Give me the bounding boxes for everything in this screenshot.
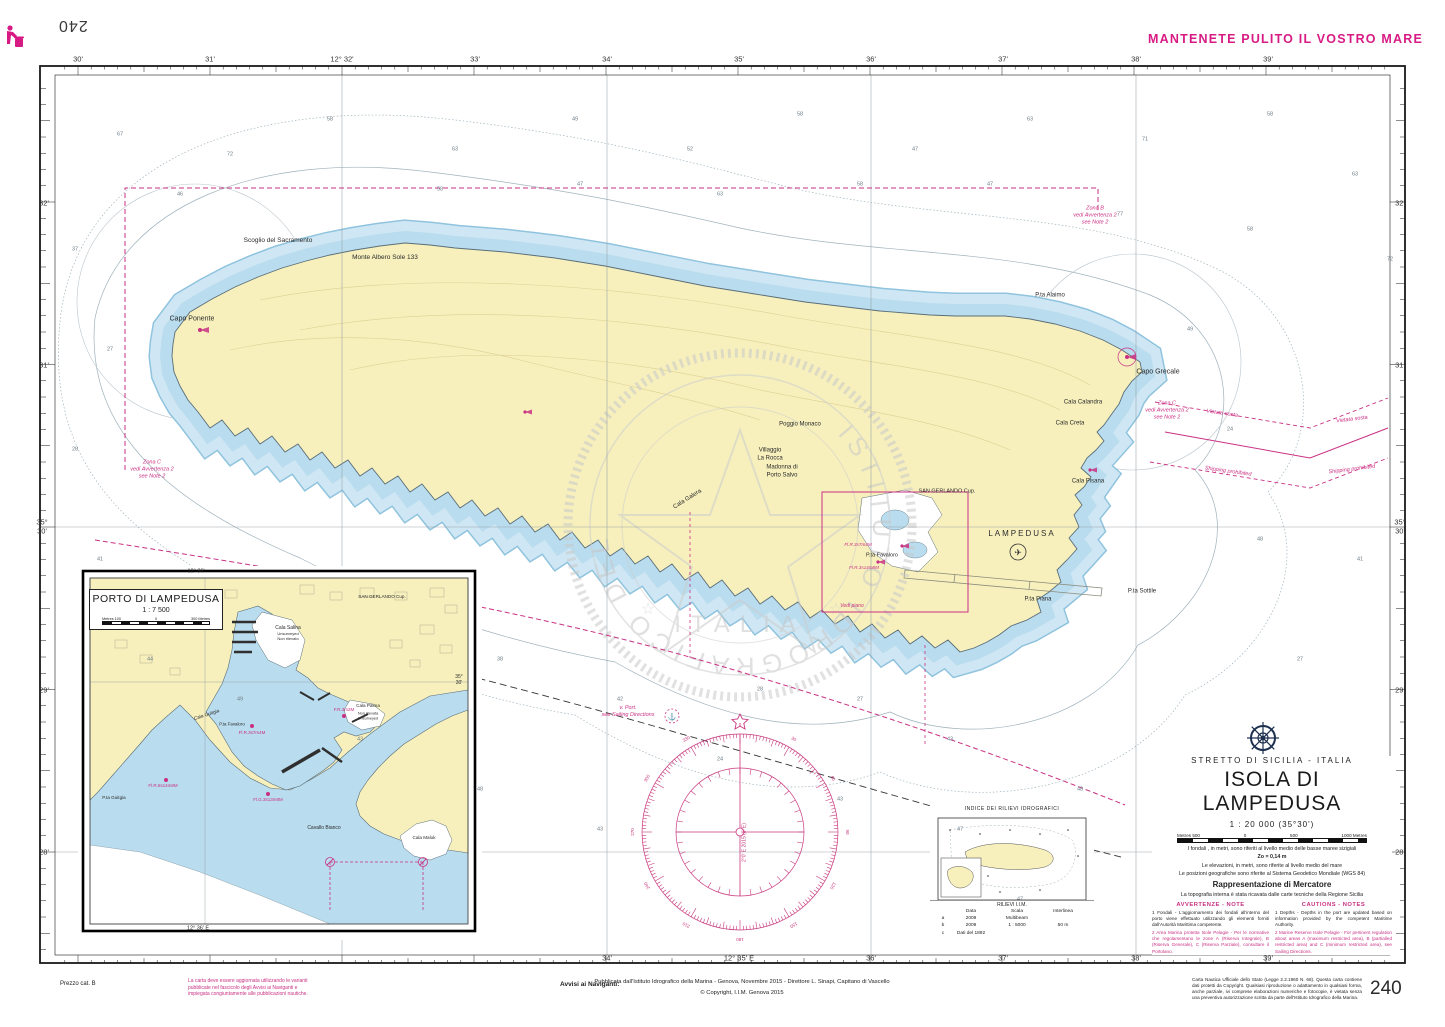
inset-light-label: Fl.G.3s13m8M [253, 797, 283, 803]
row-scala: 1 : 5000 [994, 922, 1040, 929]
row-letter: c [938, 930, 948, 937]
notes-columns: AVVERTENZE - NOTE 1 Fondali - L'aggiorna… [1152, 902, 1392, 955]
chart-title-block: STRETTO DI SICILIA - ITALIA ISOLA DI LAM… [1152, 756, 1392, 955]
row-data: 2009 [948, 915, 994, 922]
inset-scale: 1 : 7 500 [92, 607, 220, 614]
inset-scalebar-left: Metres 100 [102, 617, 121, 621]
index-table-header: Data Scala Interlinea [930, 908, 1094, 915]
scalebar-right: 1000 Metres [1341, 833, 1367, 838]
chart-title: ISOLA DI LAMPEDUSA [1152, 768, 1392, 816]
elevations-note: Le elevazioni, in metri, sono riferite a… [1152, 863, 1392, 869]
row-scala: Multibeam [994, 915, 1040, 922]
depths-note: I fondali , in metri, sono riferiti al l… [1152, 846, 1392, 852]
chart-scale: 1 : 20 000 (35°30') [1152, 820, 1392, 829]
avvertenze-header: AVVERTENZE - NOTE [1152, 902, 1269, 908]
inset-scalebar-zero: 0 [155, 617, 157, 621]
projection-note: Rappresentazione di Mercatore [1152, 880, 1392, 889]
row-data: 2009 [948, 922, 994, 929]
row-scala [994, 930, 1040, 937]
inset-title-box: PORTO DI LAMPEDUSA 1 : 7 500 Metres 100 … [89, 589, 223, 630]
row-letter: b [938, 922, 948, 929]
inset-scalebar: Metres 100 0 300 Metres [102, 617, 210, 625]
scalebar-left: Metres 500 [1177, 833, 1200, 838]
legal-notice: Carta Nautica Ufficiale dello Stato (Leg… [1192, 977, 1362, 1001]
row-inter: 50 m [1040, 922, 1086, 929]
zo-note: Zo = 0,14 m [1152, 854, 1392, 860]
row-inter [1040, 915, 1086, 922]
cautions-header: CAUTIONS - NOTES [1275, 902, 1392, 908]
geodetic-note: Le posizioni geografiche sono riferite a… [1152, 871, 1392, 877]
index-row-c: c Dati del 1892 [930, 930, 1094, 937]
update-note: La carta deve essere aggiornata utilizza… [188, 978, 418, 998]
note1-it: 1 Fondali - L'aggiornamento dei fondali … [1152, 910, 1269, 929]
note2-en: 2 Marine Reserve Isole Pelagie - For per… [1275, 930, 1392, 955]
index-row-b: b 2009 1 : 5000 50 m [930, 922, 1094, 929]
topography-note: La topografia interna è stata ricavata d… [1152, 892, 1392, 898]
scalebar-zero: 0 [1244, 833, 1247, 838]
publisher-line: Pubblicata dall'Istituto Idrografico del… [512, 979, 972, 985]
sheet-number-bottom: 240 [1370, 978, 1402, 1000]
nautical-chart-sheet: { "page": {"number_top": "240", "number_… [0, 0, 1445, 1027]
inset-light-label: Fl.R.5s14m8M [148, 783, 177, 789]
index-col-scala: Scala [994, 908, 1040, 915]
chart-scalebar: Metres 500 0 500 1000 Metres [1177, 833, 1367, 843]
index-col-interlinea: Interlinea [1040, 908, 1086, 915]
index-box: INDICE DEI RILIEVI IDROGRAFICI RILIEVI I… [930, 806, 1094, 937]
row-data: Dati del 1892 [948, 930, 994, 937]
price-category: Prezzo cat. B [60, 981, 96, 987]
index-table: RILIEVI I.I.M. Data Scala Interlinea a 2… [930, 900, 1094, 937]
note2-it: 2 Area Marina protetta Isole Pelagie - P… [1152, 930, 1269, 955]
inset-light-label: Fl.R.3s7m4M [239, 730, 266, 736]
scalebar-mid: 500 [1290, 833, 1298, 838]
copyright-line: © Copyright, I.I.M. Genova 2015 [512, 990, 972, 996]
region-subtitle: STRETTO DI SICILIA - ITALIA [1152, 756, 1392, 765]
inset-title: PORTO DI LAMPEDUSA [92, 593, 220, 605]
note1-en: 1 Depths - Depths in the port are update… [1275, 910, 1392, 929]
index-col-data: Data [948, 908, 994, 915]
row-inter [1040, 930, 1086, 937]
inset-scalebar-right: 300 Metres [191, 617, 210, 621]
row-letter: a [938, 915, 948, 922]
index-row-a: a 2009 Multibeam [930, 915, 1094, 922]
inset-light-label: F.R.3m2M [334, 707, 355, 713]
